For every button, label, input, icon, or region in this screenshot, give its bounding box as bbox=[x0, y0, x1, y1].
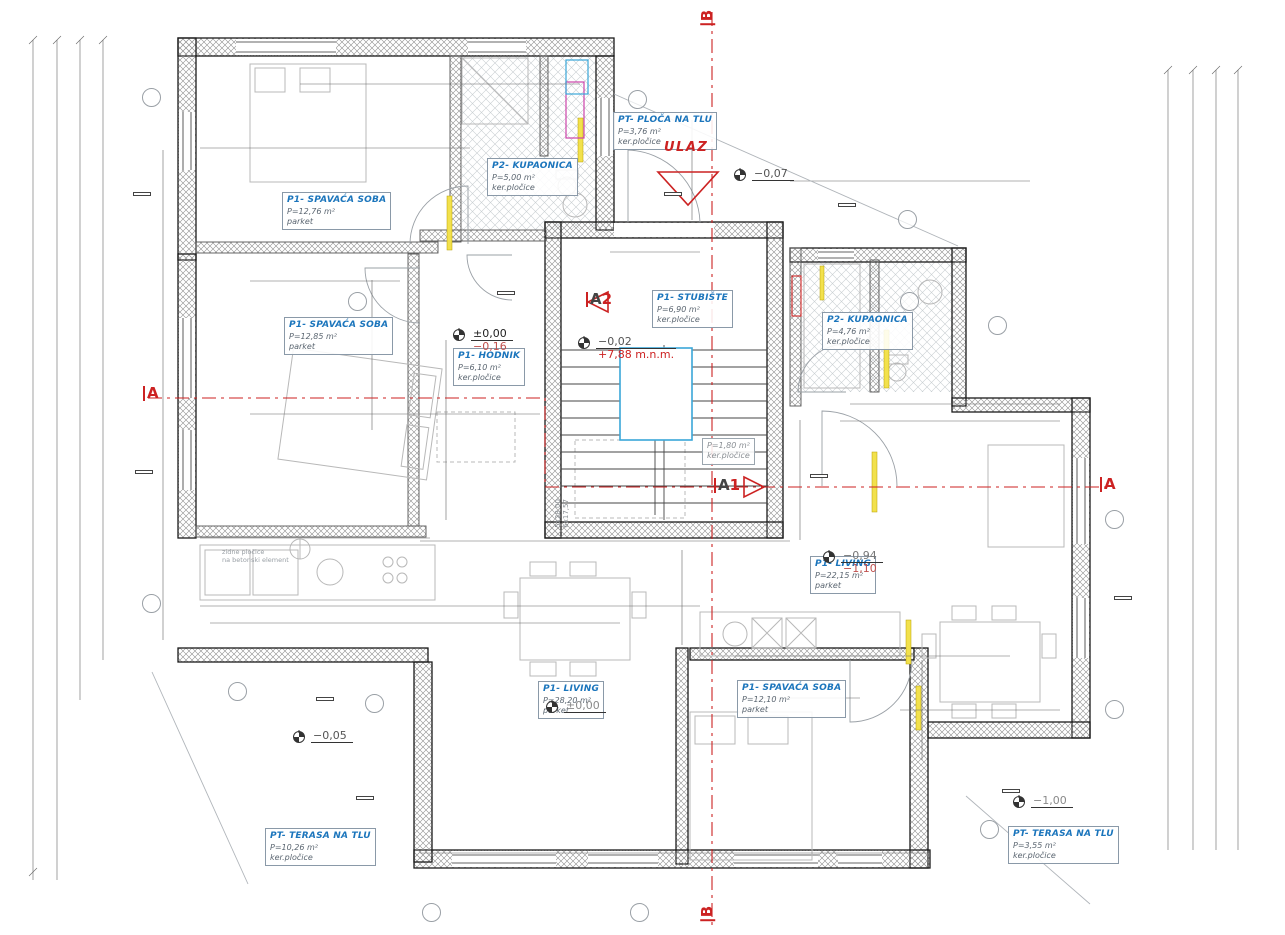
room-area: P=4,76 m² bbox=[827, 327, 908, 337]
room-label: P2- KUPAONICA P=5,00 m² ker.pločice bbox=[487, 158, 578, 196]
room-area: P=5,00 m² bbox=[492, 173, 573, 183]
element-tag bbox=[838, 203, 856, 207]
room-label: P2- KUPAONICA P=4,76 m² ker.pločice bbox=[822, 312, 913, 350]
material-note-line2: na betonski element bbox=[222, 556, 289, 564]
room-area: P=12,85 m² bbox=[289, 332, 388, 342]
floor-plan-sheet: P1- SPAVAĆA SOBA P=12,76 m² parket P2- K… bbox=[0, 0, 1285, 935]
elevation-symbol bbox=[545, 700, 561, 714]
room-label: P1- STUBIŠTE P=6,90 m² ker.pločice bbox=[652, 290, 733, 328]
room-area: P=3,55 m² bbox=[1013, 841, 1114, 851]
section-marker: A bbox=[143, 386, 159, 401]
elevation-mark: ±0,00 bbox=[545, 700, 606, 714]
room-name: P1- SPAVAĆA SOBA bbox=[742, 683, 841, 695]
dimension-lines bbox=[29, 36, 1242, 880]
room-name: P1- HODNIK bbox=[458, 351, 520, 363]
element-tag-circle bbox=[422, 903, 441, 922]
room-name: PT- TERASA NA TLU bbox=[1013, 829, 1114, 841]
element-tag-circle bbox=[900, 292, 919, 311]
room-area: P=6,90 m² bbox=[657, 305, 728, 315]
elevation-symbol bbox=[292, 730, 308, 744]
room-name: P1- STUBIŠTE bbox=[657, 293, 728, 305]
element-tag bbox=[356, 796, 374, 800]
room-name: PT- PLOČA NA TLU bbox=[618, 115, 712, 127]
room-name: P2- KUPAONICA bbox=[492, 161, 573, 173]
room-label: P1- SPAVAĆA SOBA P=12,76 m² parket bbox=[282, 192, 391, 230]
material-note: zidne pločice na betonski element bbox=[222, 549, 289, 565]
stair-note-line2: 6x17,57 bbox=[562, 499, 570, 528]
elevation-value-2: +7,88 m.n.m. bbox=[596, 349, 676, 361]
room-name: P1- SPAVAĆA SOBA bbox=[289, 320, 388, 332]
element-tag-circle bbox=[1105, 510, 1124, 529]
element-tag-circle bbox=[898, 210, 917, 229]
section-letter: B bbox=[698, 906, 716, 917]
entrance-label: ULAZ bbox=[664, 140, 708, 155]
room-name: PT- TERASA NA TLU bbox=[270, 831, 371, 843]
section-marker: B bbox=[700, 906, 715, 921]
element-tag-circle bbox=[142, 88, 161, 107]
elevation-mark: −0,07 bbox=[733, 168, 794, 182]
elevation-symbol bbox=[577, 336, 593, 350]
element-tag bbox=[497, 291, 515, 295]
elevation-symbol bbox=[822, 550, 838, 564]
element-tag-circle bbox=[988, 316, 1007, 335]
room-floor: ker.pločice bbox=[492, 183, 573, 193]
room-label: P1- SPAVAĆA SOBA P=12,10 m² parket bbox=[737, 680, 846, 718]
section-number: 1 bbox=[730, 476, 740, 494]
room-floor: parket bbox=[287, 217, 386, 227]
elevation-value: ±0,00 bbox=[564, 700, 606, 713]
room-label: PT- TERASA NA TLU P=10,26 m² ker.pločice bbox=[265, 828, 376, 866]
section-letter: A bbox=[718, 476, 730, 494]
elevation-symbol bbox=[1012, 795, 1028, 809]
stair-note-line1: 5x28,00 bbox=[554, 499, 562, 528]
stair-note: 5x28,00 6x17,57 bbox=[554, 499, 571, 528]
element-tag bbox=[316, 697, 334, 701]
room-area: P=10,26 m² bbox=[270, 843, 371, 853]
element-tag-circle bbox=[365, 694, 384, 713]
section-number: 2 bbox=[602, 290, 612, 308]
element-tag bbox=[1114, 596, 1132, 600]
elevation-value: −0,02 bbox=[596, 336, 676, 349]
elevation-value-2: −0,16 bbox=[471, 341, 513, 353]
room-area: P=12,76 m² bbox=[287, 207, 386, 217]
section-marker: A1 bbox=[714, 478, 740, 493]
entrance-arrow bbox=[658, 172, 718, 205]
elevation-mark: ±0,00 −0,16 bbox=[452, 328, 513, 352]
room-floor: ker.pločice bbox=[827, 337, 908, 347]
elevation-mark: −0,02 +7,88 m.n.m. bbox=[577, 336, 676, 360]
room-name: P1- SPAVAĆA SOBA bbox=[287, 195, 386, 207]
section-marker: B bbox=[700, 10, 715, 25]
room-floor: ker.pločice bbox=[270, 853, 371, 863]
elevation-mark: −0,05 bbox=[292, 730, 353, 744]
room-floor: ker.pločice bbox=[707, 451, 750, 461]
room-floor: ker.pločice bbox=[458, 373, 520, 383]
room-name: P1- LIVING bbox=[543, 684, 599, 696]
elevation-symbol bbox=[452, 328, 468, 342]
element-tag bbox=[133, 192, 151, 196]
element-tag-circle bbox=[980, 820, 999, 839]
element-tag bbox=[810, 474, 828, 478]
room-area: P=3,76 m² bbox=[618, 127, 712, 137]
elevation-value: ±0,00 bbox=[471, 328, 513, 341]
element-tag-circle bbox=[348, 292, 367, 311]
elevation-symbol bbox=[733, 168, 749, 182]
room-area: P=6,10 m² bbox=[458, 363, 520, 373]
elevation-value: −0,94 bbox=[841, 550, 883, 563]
room-floor: ker.pločice bbox=[657, 315, 728, 325]
room-label: P1- HODNIK P=6,10 m² ker.pločice bbox=[453, 348, 525, 386]
room-area: P=12,10 m² bbox=[742, 695, 841, 705]
section-letter: A bbox=[1104, 475, 1116, 493]
room-label: P1- SPAVAĆA SOBA P=12,85 m² parket bbox=[284, 317, 393, 355]
element-tag bbox=[135, 470, 153, 474]
elevation-value: −1,00 bbox=[1031, 795, 1073, 808]
elevation-value: −0,07 bbox=[752, 168, 794, 181]
element-tag-circle bbox=[142, 594, 161, 613]
element-tag-circle bbox=[628, 90, 647, 109]
room-label: PT- TERASA NA TLU P=3,55 m² ker.pločice bbox=[1008, 826, 1119, 864]
section-letter: A bbox=[590, 290, 602, 308]
room-floor: parket bbox=[289, 342, 388, 352]
section-letter: B bbox=[698, 10, 716, 21]
room-floor: parket bbox=[815, 581, 871, 591]
room-name: P2- KUPAONICA bbox=[827, 315, 908, 327]
elevation-value: −0,05 bbox=[311, 730, 353, 743]
room-label: P=1,80 m² ker.pločice bbox=[702, 438, 755, 465]
section-marker: A bbox=[1100, 477, 1116, 492]
element-tag bbox=[1002, 789, 1020, 793]
element-tag bbox=[664, 192, 682, 196]
elevation-mark: −0,94 −1,10 bbox=[822, 550, 883, 574]
element-tag-circle bbox=[228, 682, 247, 701]
section-letter: A bbox=[147, 384, 159, 402]
elevation-mark: −1,00 bbox=[1012, 795, 1073, 809]
element-tag-circle bbox=[1105, 700, 1124, 719]
elevation-value-2: −1,10 bbox=[841, 563, 883, 575]
room-floor: parket bbox=[742, 705, 841, 715]
room-floor: ker.pločice bbox=[1013, 851, 1114, 861]
element-tag-circle bbox=[630, 903, 649, 922]
room-area: P=1,80 m² bbox=[707, 441, 750, 451]
section-marker: A2 bbox=[586, 292, 612, 307]
material-note-line1: zidne pločice bbox=[222, 548, 264, 556]
